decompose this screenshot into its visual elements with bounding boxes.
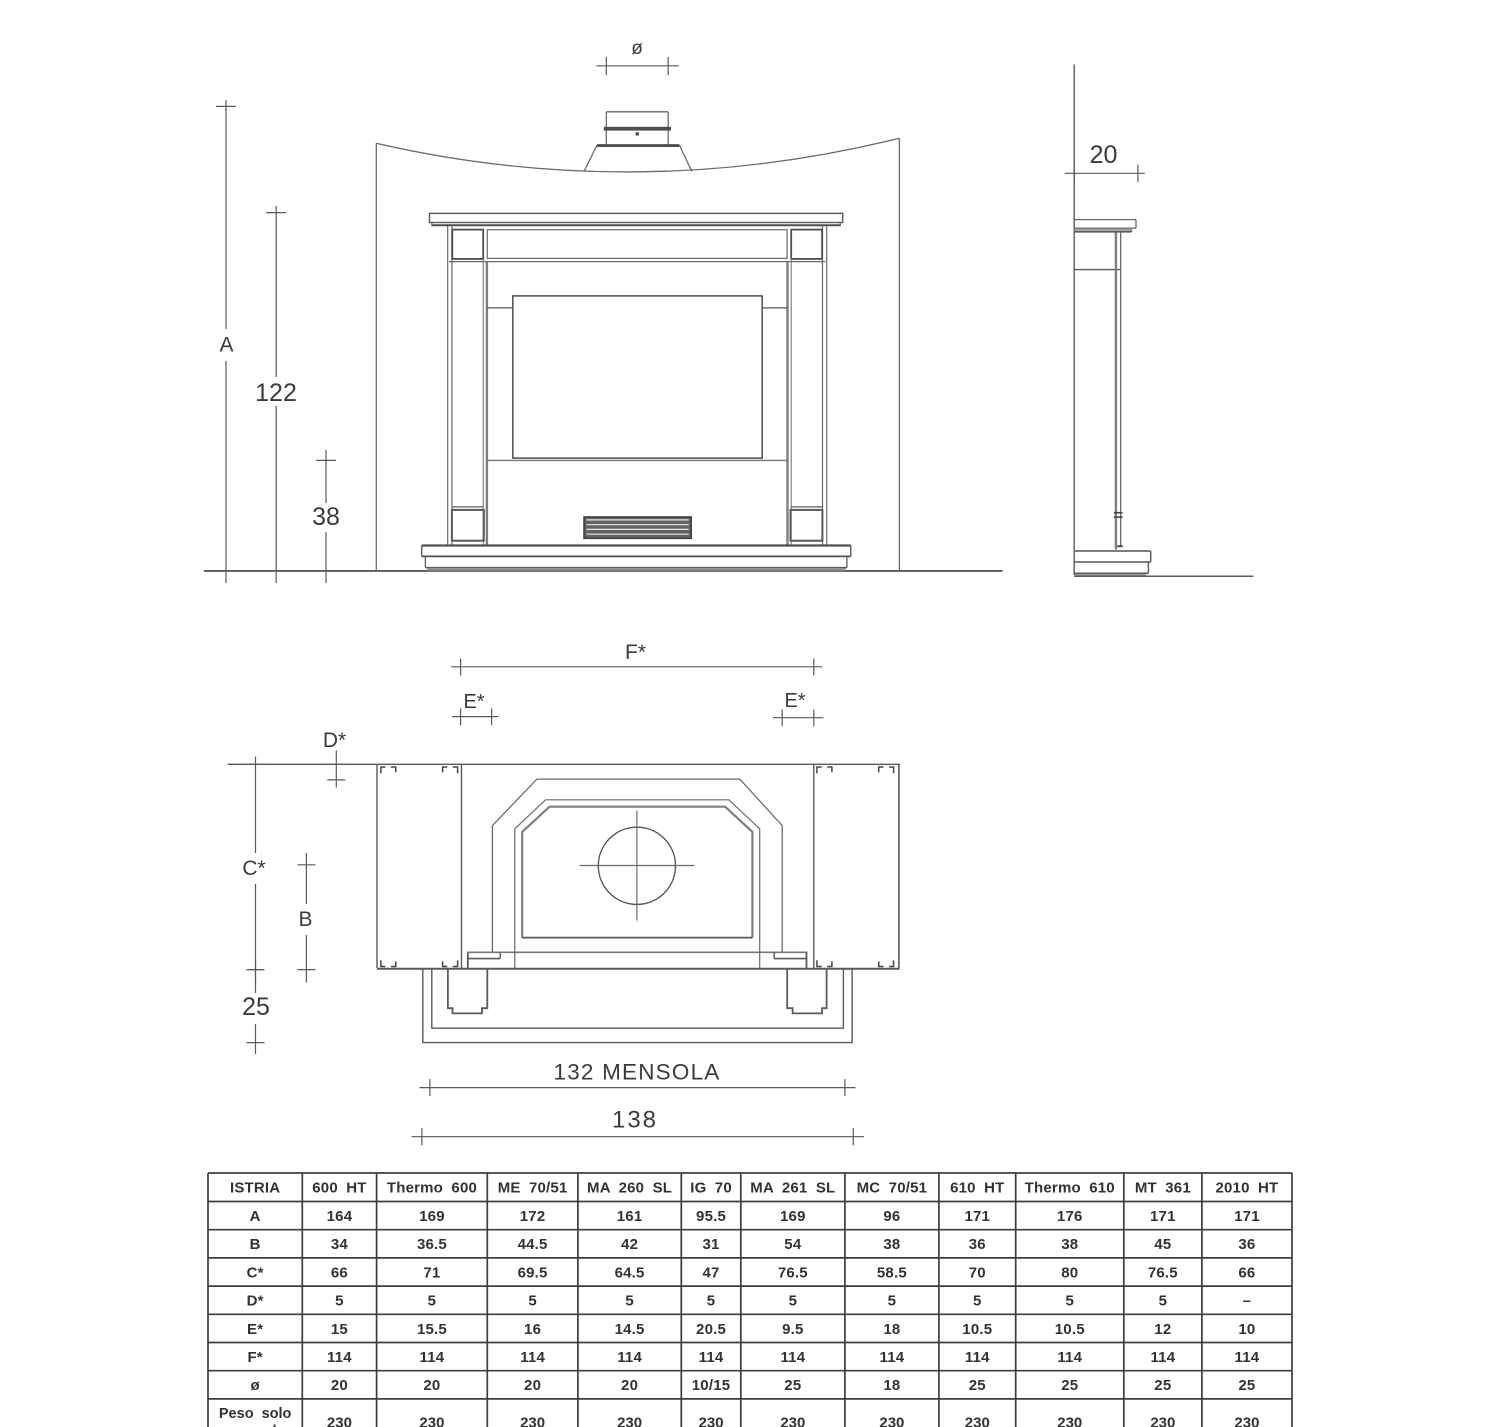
svg-text:mensola: mensola [226, 1424, 286, 1427]
svg-text:12: 12 [1154, 1321, 1171, 1338]
svg-text:70: 70 [969, 1264, 986, 1281]
svg-text:A: A [219, 334, 233, 357]
svg-text:171: 171 [964, 1208, 990, 1225]
svg-text:F*: F* [247, 1349, 262, 1366]
svg-text:58.5: 58.5 [877, 1264, 907, 1281]
svg-text:114: 114 [520, 1349, 545, 1366]
svg-text:176: 176 [1057, 1208, 1083, 1225]
svg-text:36: 36 [969, 1236, 986, 1253]
svg-text:138: 138 [612, 1106, 658, 1133]
svg-text:114: 114 [617, 1349, 642, 1366]
svg-text:71: 71 [423, 1264, 440, 1281]
svg-text:Thermo 600: Thermo 600 [387, 1180, 477, 1197]
svg-text:114: 114 [879, 1349, 904, 1366]
svg-text:C*: C* [247, 1264, 264, 1281]
svg-text:114: 114 [420, 1349, 445, 1366]
svg-text:44.5: 44.5 [518, 1236, 548, 1253]
svg-text:610 HT: 610 HT [950, 1180, 1004, 1197]
svg-text:25: 25 [1154, 1377, 1171, 1394]
svg-text:114: 114 [1150, 1349, 1175, 1366]
svg-text:600 HT: 600 HT [312, 1180, 366, 1197]
svg-text:20: 20 [1090, 141, 1118, 169]
svg-text:16: 16 [524, 1321, 541, 1338]
svg-text:Thermo 610: Thermo 610 [1025, 1180, 1115, 1197]
svg-text:42: 42 [621, 1236, 638, 1253]
svg-text:ø: ø [250, 1377, 260, 1394]
svg-text:18: 18 [883, 1321, 900, 1338]
svg-text:66: 66 [331, 1264, 348, 1281]
svg-text:38: 38 [312, 503, 340, 531]
svg-text:230: 230 [879, 1414, 904, 1427]
svg-text:114: 114 [699, 1349, 724, 1366]
svg-text:25: 25 [1238, 1377, 1255, 1394]
svg-text:5: 5 [888, 1293, 897, 1310]
svg-text:5: 5 [335, 1293, 344, 1310]
svg-text:80: 80 [1061, 1264, 1078, 1281]
svg-text:114: 114 [1235, 1349, 1260, 1366]
svg-text:169: 169 [419, 1208, 445, 1225]
svg-text:5: 5 [1065, 1293, 1074, 1310]
svg-text:18: 18 [883, 1377, 900, 1394]
svg-text:114: 114 [780, 1349, 805, 1366]
svg-text:230: 230 [699, 1414, 724, 1427]
svg-text:20: 20 [423, 1377, 440, 1394]
svg-text:MA 261 SL: MA 261 SL [750, 1180, 835, 1197]
svg-text:15.5: 15.5 [417, 1321, 447, 1338]
svg-text:ME 70/51: ME 70/51 [498, 1180, 568, 1197]
svg-text:38: 38 [1061, 1236, 1078, 1253]
svg-text:5: 5 [973, 1293, 982, 1310]
svg-text:96: 96 [883, 1208, 900, 1225]
svg-text:36: 36 [1238, 1236, 1255, 1253]
svg-text:A: A [250, 1208, 261, 1225]
svg-text:D*: D* [323, 729, 346, 752]
svg-text:47: 47 [703, 1264, 720, 1281]
svg-text:IG 70: IG 70 [690, 1180, 732, 1197]
svg-text:161: 161 [617, 1208, 643, 1225]
svg-text:20: 20 [331, 1377, 348, 1394]
svg-text:122: 122 [255, 379, 297, 407]
svg-text:B: B [250, 1236, 261, 1253]
svg-text:5: 5 [428, 1293, 437, 1310]
svg-text:20: 20 [621, 1377, 638, 1394]
svg-text:10.5: 10.5 [1055, 1321, 1085, 1338]
svg-text:230: 230 [1057, 1414, 1082, 1427]
svg-text:64.5: 64.5 [615, 1264, 645, 1281]
svg-text:5: 5 [528, 1293, 537, 1310]
svg-text:ø: ø [631, 38, 643, 59]
svg-text:171: 171 [1150, 1208, 1176, 1225]
svg-text:114: 114 [327, 1349, 352, 1366]
svg-text:230: 230 [327, 1414, 352, 1427]
svg-text:114: 114 [1057, 1349, 1082, 1366]
svg-text:9.5: 9.5 [782, 1321, 803, 1338]
svg-text:MA 260 SL: MA 260 SL [587, 1180, 672, 1197]
svg-text:Peso solo: Peso solo [219, 1406, 292, 1422]
svg-text:5: 5 [1159, 1293, 1168, 1310]
svg-text:E*: E* [463, 691, 484, 713]
svg-text:171: 171 [1234, 1208, 1260, 1225]
svg-text:ISTRIA: ISTRIA [230, 1180, 280, 1197]
svg-text:172: 172 [520, 1208, 546, 1225]
svg-text:25: 25 [242, 993, 270, 1021]
svg-text:E*: E* [247, 1321, 263, 1338]
svg-text:230: 230 [617, 1414, 642, 1427]
svg-text:76.5: 76.5 [1148, 1264, 1178, 1281]
svg-text:25: 25 [969, 1377, 986, 1394]
svg-text:20: 20 [524, 1377, 541, 1394]
svg-text:2010 HT: 2010 HT [1215, 1180, 1278, 1197]
svg-text:69.5: 69.5 [518, 1264, 548, 1281]
svg-text:20.5: 20.5 [696, 1321, 726, 1338]
svg-text:5: 5 [707, 1293, 716, 1310]
svg-text:45: 45 [1154, 1236, 1171, 1253]
svg-text:31: 31 [703, 1236, 720, 1253]
svg-text:95.5: 95.5 [696, 1208, 726, 1225]
svg-text:C*: C* [242, 857, 265, 880]
svg-text:36.5: 36.5 [417, 1236, 447, 1253]
svg-text:114: 114 [965, 1349, 990, 1366]
svg-text:25: 25 [784, 1377, 801, 1394]
svg-text:38: 38 [883, 1236, 900, 1253]
svg-text:5: 5 [625, 1293, 634, 1310]
svg-text:76.5: 76.5 [778, 1264, 808, 1281]
svg-text:5: 5 [789, 1293, 798, 1310]
svg-text:230: 230 [1234, 1414, 1259, 1427]
svg-text:E*: E* [784, 690, 805, 712]
svg-text:10: 10 [1238, 1321, 1255, 1338]
svg-text:54: 54 [784, 1236, 802, 1253]
svg-text:15: 15 [331, 1321, 348, 1338]
svg-text:F*: F* [625, 641, 646, 664]
svg-text:B: B [298, 908, 312, 931]
svg-text:230: 230 [419, 1414, 444, 1427]
svg-text:MC 70/51: MC 70/51 [857, 1180, 928, 1197]
svg-text:164: 164 [327, 1208, 353, 1225]
svg-text:25: 25 [1061, 1377, 1078, 1394]
svg-text:10.5: 10.5 [962, 1321, 992, 1338]
svg-text:230: 230 [780, 1414, 805, 1427]
svg-text:230: 230 [520, 1414, 545, 1427]
svg-text:34: 34 [331, 1236, 349, 1253]
svg-text:169: 169 [780, 1208, 806, 1225]
svg-text:132 MENSOLA: 132 MENSOLA [553, 1060, 720, 1085]
svg-text:66: 66 [1238, 1264, 1255, 1281]
svg-text:230: 230 [965, 1414, 990, 1427]
svg-text:MT 361: MT 361 [1135, 1180, 1191, 1197]
svg-text:14.5: 14.5 [615, 1321, 645, 1338]
svg-text:–: – [1243, 1293, 1252, 1310]
svg-text:10/15: 10/15 [692, 1377, 731, 1394]
svg-text:230: 230 [1150, 1414, 1175, 1427]
svg-text:D*: D* [247, 1293, 264, 1310]
